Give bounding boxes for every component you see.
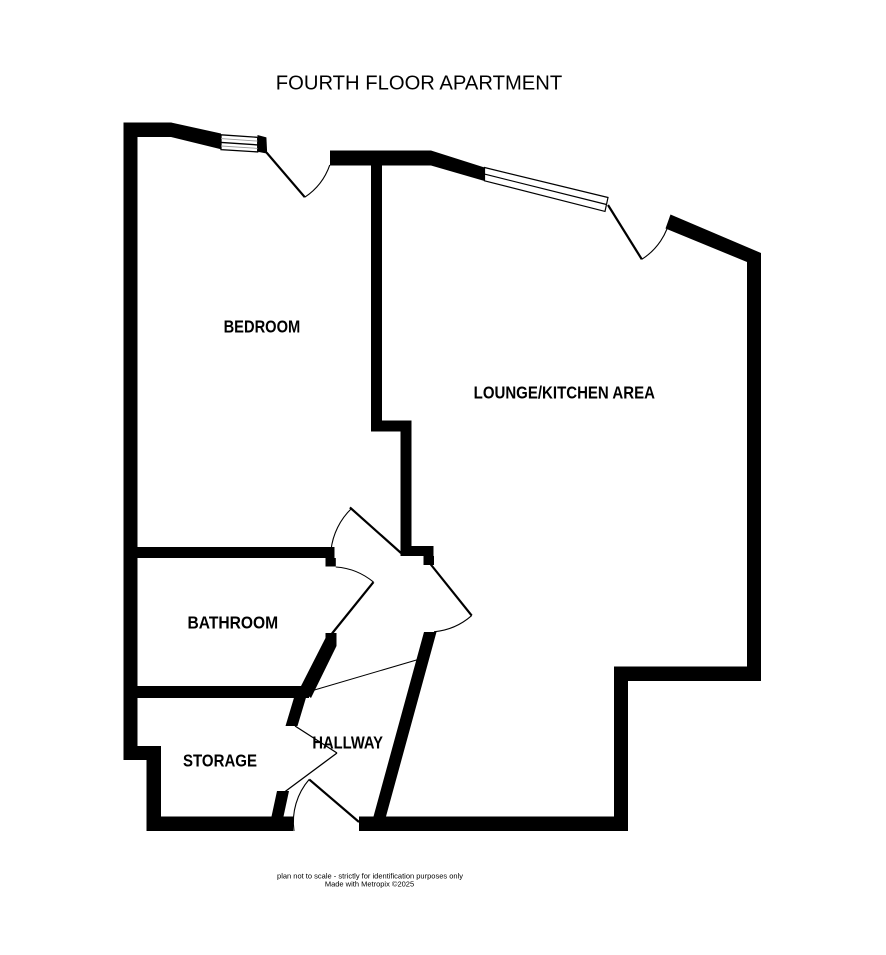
- svg-text:HALLWAY: HALLWAY: [312, 733, 383, 752]
- svg-text:Made with Metropix ©2025: Made with Metropix ©2025: [325, 879, 414, 888]
- svg-text:BEDROOM: BEDROOM: [224, 317, 301, 336]
- svg-text:FOURTH FLOOR APARTMENT: FOURTH FLOOR APARTMENT: [276, 73, 562, 95]
- svg-text:BATHROOM: BATHROOM: [187, 613, 278, 633]
- svg-text:STORAGE: STORAGE: [183, 751, 257, 770]
- svg-text:LOUNGE/KITCHEN AREA: LOUNGE/KITCHEN AREA: [474, 384, 656, 403]
